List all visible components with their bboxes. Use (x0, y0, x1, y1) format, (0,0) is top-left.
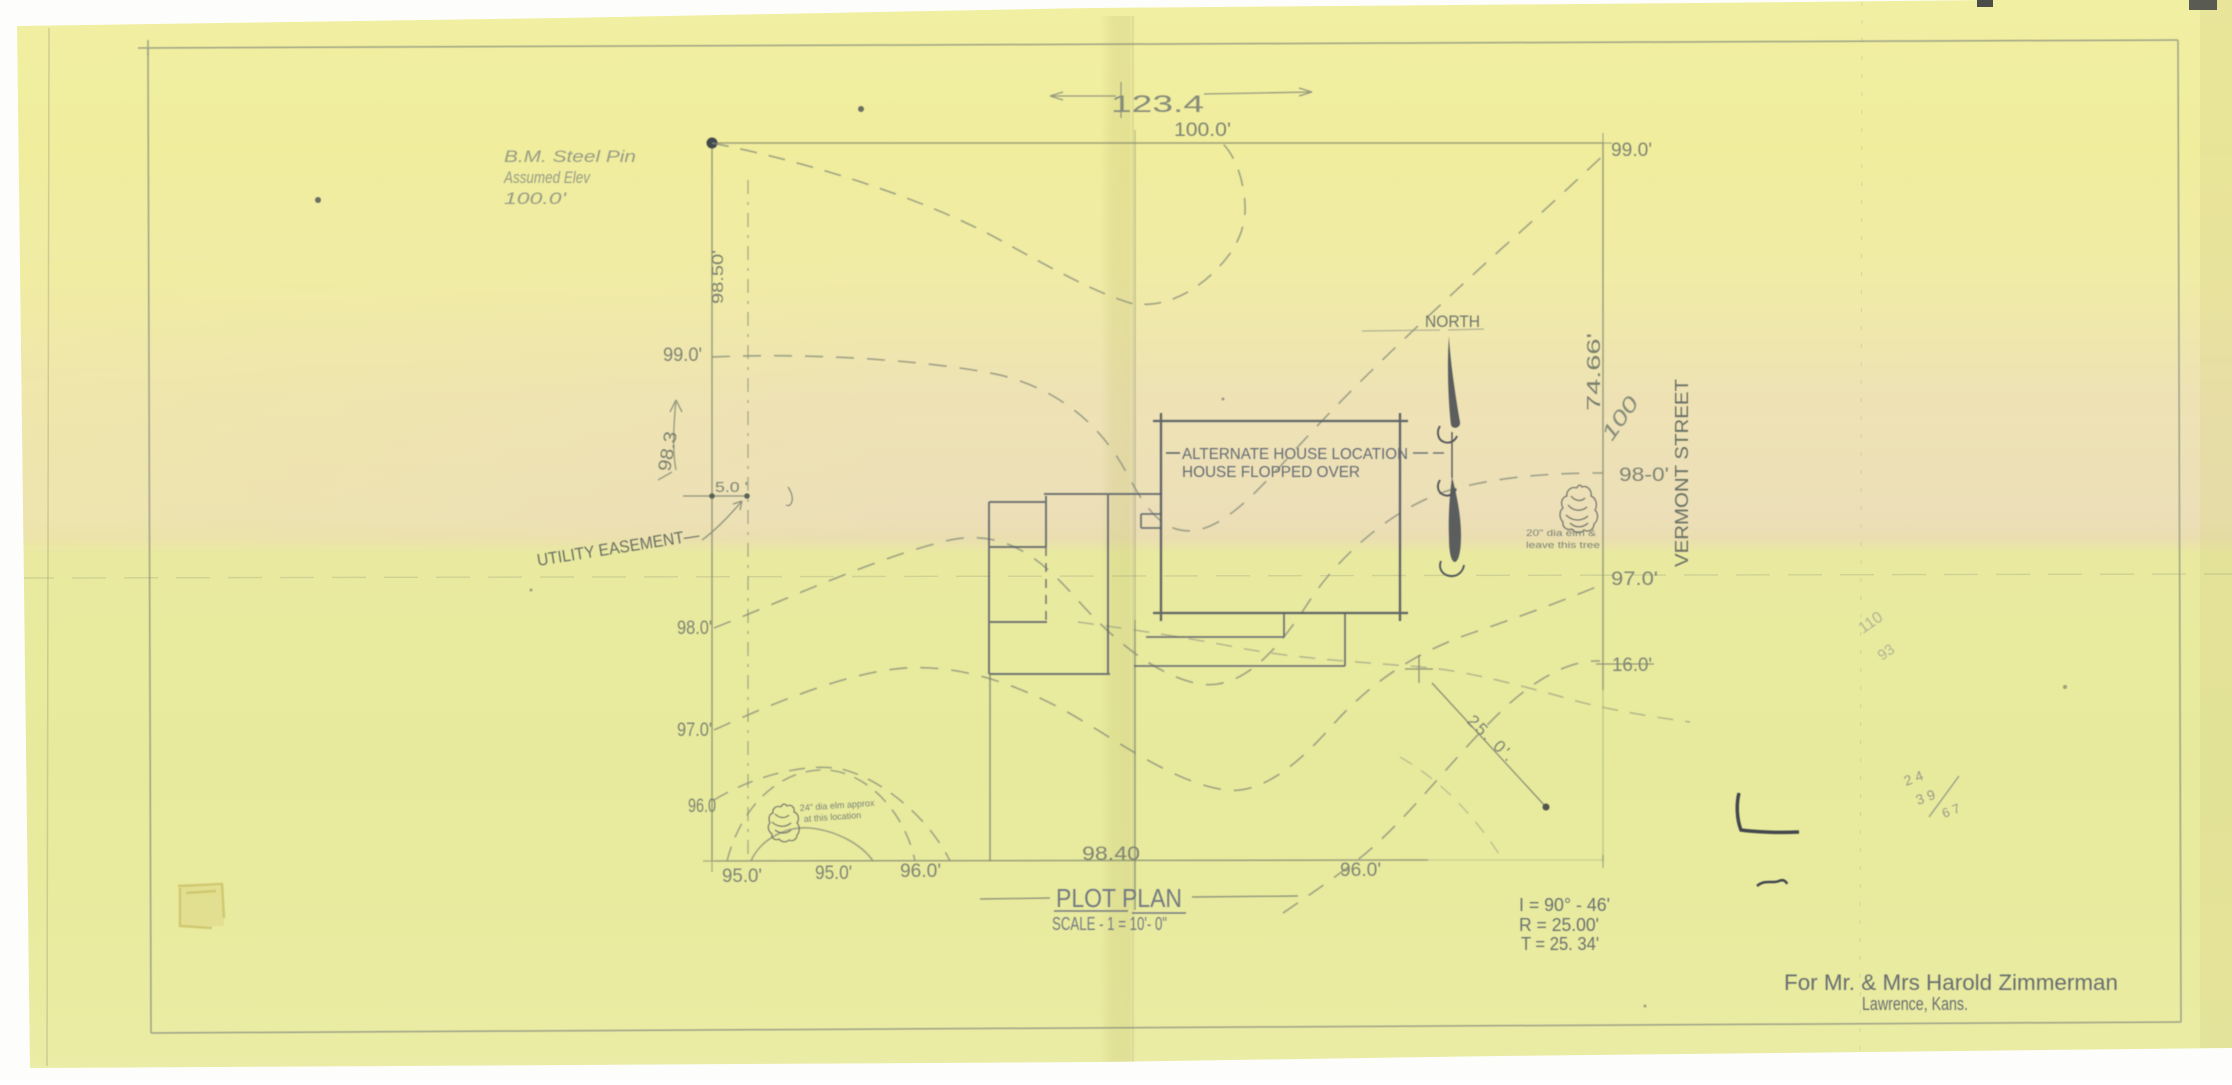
svg-text:R = 25.00': R = 25.00' (1519, 915, 1599, 935)
svg-text:I = 90° - 46': I = 90° - 46' (1519, 895, 1610, 915)
svg-text:PLOT PLAN: PLOT PLAN (1056, 883, 1182, 913)
svg-text:99.0': 99.0' (1611, 140, 1652, 161)
svg-text:95.0': 95.0' (815, 863, 852, 884)
svg-text:ALTERNATE HOUSE LOCATION: ALTERNATE HOUSE LOCATION (1182, 446, 1408, 463)
svg-text:16.0': 16.0' (1612, 655, 1652, 676)
svg-text:For Mr. & Mrs Harold Zimmerman: For Mr. & Mrs Harold Zimmerman (1784, 970, 2118, 995)
svg-text:Assumed Elev: Assumed Elev (503, 168, 591, 187)
svg-text:74.66': 74.66' (1584, 333, 1604, 411)
svg-text:VERMONT STREET: VERMONT STREET (1672, 379, 1692, 567)
svg-text:leave this tree: leave this tree (1526, 540, 1600, 550)
svg-text:100.0': 100.0' (504, 189, 567, 208)
svg-text:NORTH: NORTH (1425, 312, 1480, 331)
svg-text:SCALE - 1 = 10'- 0": SCALE - 1 = 10'- 0" (1052, 914, 1167, 934)
svg-text:98.50': 98.50' (710, 250, 727, 304)
svg-text:HOUSE FLOPPED OVER: HOUSE FLOPPED OVER (1182, 464, 1360, 481)
svg-text:97.0': 97.0' (1611, 569, 1658, 590)
svg-text:98-0': 98-0' (1619, 465, 1669, 486)
svg-text:123.4: 123.4 (1111, 91, 1204, 118)
svg-text:95.0': 95.0' (722, 866, 762, 887)
svg-text:5.0 ': 5.0 ' (715, 479, 748, 496)
svg-text:20" dia elm &: 20" dia elm & (1526, 528, 1596, 538)
svg-text:T = 25. 34': T = 25. 34' (1521, 934, 1599, 954)
svg-text:98.0': 98.0' (677, 618, 712, 639)
svg-text:99.0': 99.0' (663, 345, 702, 366)
svg-text:96.0': 96.0' (1340, 860, 1381, 881)
svg-text:97.0': 97.0' (677, 720, 712, 741)
svg-text:96.0: 96.0 (688, 796, 716, 817)
svg-text:98.40: 98.40 (1082, 844, 1140, 865)
svg-text:Lawrence, Kans.: Lawrence, Kans. (1862, 994, 1968, 1014)
svg-text:B.M. Steel Pin: B.M. Steel Pin (504, 147, 636, 166)
svg-text:96.0': 96.0' (900, 861, 941, 882)
svg-text:100.0': 100.0' (1174, 120, 1231, 141)
